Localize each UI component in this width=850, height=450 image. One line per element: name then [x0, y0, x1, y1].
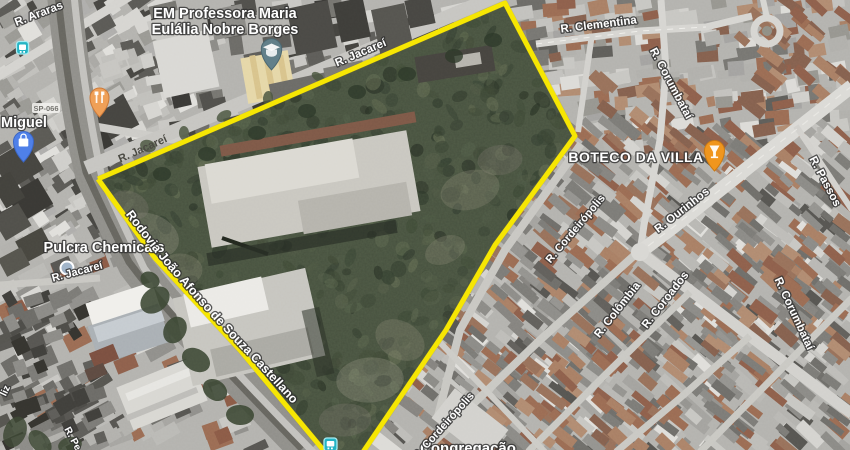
svg-text:BOTECO DA VILLA: BOTECO DA VILLA	[568, 149, 703, 165]
svg-text:EM Professora Maria: EM Professora Maria	[153, 6, 297, 22]
svg-text:SP-066: SP-066	[33, 104, 58, 113]
svg-text:Miguel: Miguel	[1, 115, 47, 131]
svg-text:Eulália Nobre Borges: Eulália Nobre Borges	[152, 22, 299, 38]
